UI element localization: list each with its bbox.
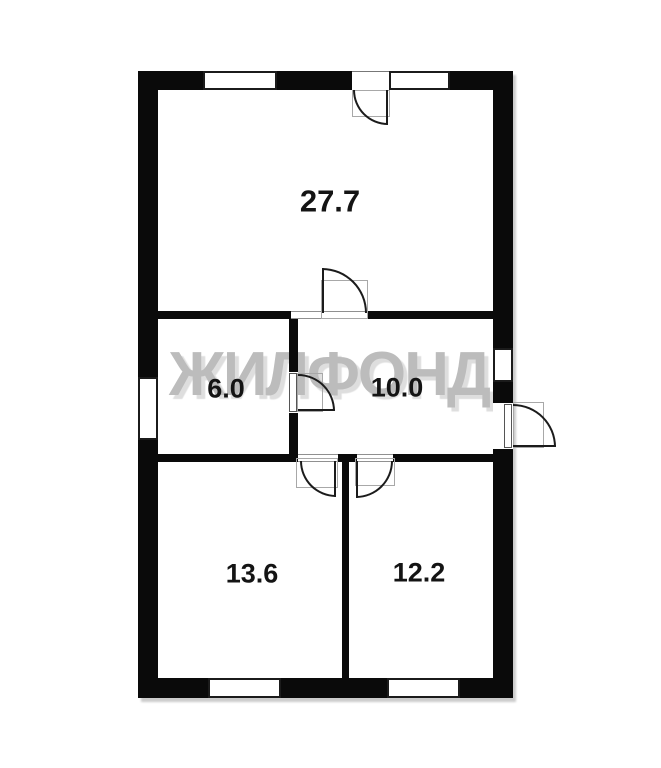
floor-plan-canvas: ЖИЛФОНД 27.7 6.0 10.0 13.6 12.2 [0, 0, 661, 768]
window-top-left [203, 71, 277, 90]
room-area-label-kitchen: 6.0 [207, 376, 245, 403]
door-swing-entrance [513, 404, 556, 447]
window-balcony [389, 71, 450, 90]
window-bottom-right [387, 678, 460, 698]
room-area-label-hall: 10.0 [371, 375, 424, 402]
room-area-label-bedroom2: 12.2 [393, 560, 446, 587]
exterior-wall [138, 71, 513, 698]
interior-wall-bedrooms [342, 462, 349, 678]
door-leaf-panel-entrance [504, 404, 512, 448]
wall-opening-balcony-door [352, 71, 389, 90]
door-leaf-panel-kitchen [289, 373, 297, 412]
window-left [138, 377, 158, 440]
window-bottom-left [208, 678, 281, 698]
window-right [493, 348, 513, 382]
room-area-label-bedroom1: 13.6 [226, 561, 279, 588]
room-area-label-living: 27.7 [300, 186, 360, 217]
